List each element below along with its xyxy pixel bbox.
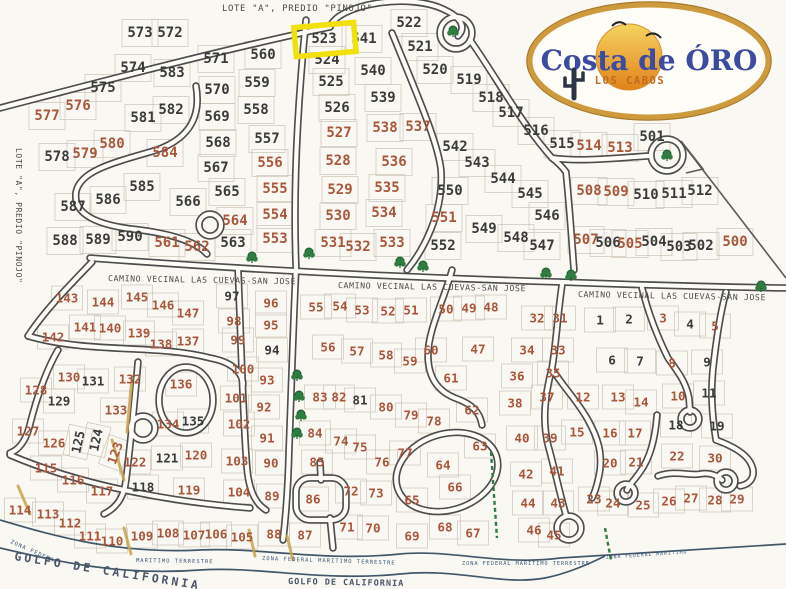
- lot-number-136: 136: [170, 377, 193, 392]
- lot-number-509: 509: [603, 184, 628, 200]
- lot-number-89: 89: [264, 489, 279, 504]
- lot-number-554: 554: [262, 207, 287, 223]
- lot-number-138: 138: [150, 337, 173, 352]
- lot-number-127: 127: [17, 424, 40, 439]
- lot-number-84: 84: [307, 426, 323, 441]
- lot-number-113: 113: [37, 507, 60, 522]
- lot-number-43: 43: [550, 496, 565, 511]
- lot-number-14: 14: [633, 395, 649, 410]
- top-title: LOTE "A", PREDIO "PINOJO": [222, 4, 372, 14]
- lot-number-586: 586: [95, 192, 120, 208]
- lot-number-34: 34: [519, 343, 535, 358]
- lot-number-147: 147: [177, 306, 200, 321]
- lot-number-567: 567: [203, 160, 228, 176]
- lot-number-519: 519: [456, 72, 481, 88]
- lot-number-550: 550: [437, 183, 462, 199]
- lot-number-555: 555: [262, 181, 287, 197]
- left-title: LOTE "A", PREDIO "PINOJO": [14, 148, 23, 283]
- lot-number-518: 518: [478, 90, 503, 106]
- lot-number-87: 87: [297, 528, 312, 543]
- lot-number-90: 90: [263, 456, 278, 471]
- lot-number-86: 86: [305, 492, 320, 507]
- lot-number-42: 42: [518, 467, 533, 482]
- lot-number-543: 543: [464, 155, 489, 171]
- lot-number-536: 536: [381, 154, 406, 170]
- lot-number-146: 146: [152, 298, 175, 313]
- lot-number-56: 56: [320, 340, 335, 355]
- lot-number-76: 76: [374, 455, 389, 470]
- lot-number-17: 17: [627, 426, 642, 441]
- lot-number-568: 568: [205, 135, 230, 151]
- lot-number-515: 515: [549, 136, 574, 152]
- lot-number-547: 547: [529, 238, 554, 254]
- lot-number-36: 36: [509, 369, 524, 384]
- lot-number-139: 139: [128, 326, 151, 341]
- lot-number-53: 53: [354, 303, 369, 318]
- lot-number-105: 105: [231, 530, 254, 545]
- lot-number-24: 24: [605, 496, 621, 511]
- lot-number-115: 115: [35, 461, 58, 476]
- lot-number-527: 527: [326, 125, 351, 141]
- lot-number-69: 69: [404, 529, 419, 544]
- lot-number-67: 67: [465, 526, 480, 541]
- lot-number-49: 49: [461, 301, 476, 316]
- lot-number-13: 13: [610, 390, 625, 405]
- lot-number-65: 65: [404, 493, 419, 508]
- lot-number-45: 45: [546, 528, 561, 543]
- lot-number-16: 16: [602, 426, 617, 441]
- lot-number-106: 106: [205, 527, 228, 542]
- lot-number-15: 15: [569, 425, 584, 440]
- lot-number-59: 59: [402, 354, 417, 369]
- lot-number-91: 91: [259, 431, 274, 446]
- lot-number-520: 520: [422, 62, 447, 78]
- lot-number-52: 52: [380, 304, 395, 319]
- lot-number-531: 531: [320, 235, 345, 251]
- lot-number-2: 2: [625, 312, 633, 327]
- lot-number-37: 37: [539, 390, 554, 405]
- lot-number-510: 510: [633, 187, 658, 203]
- lot-number-532: 532: [345, 239, 370, 255]
- lot-number-27: 27: [683, 491, 698, 506]
- lot-number-588: 588: [52, 233, 77, 249]
- lot-number-40: 40: [514, 431, 529, 446]
- lot-number-590: 590: [117, 229, 142, 245]
- lot-number-563: 563: [220, 235, 245, 251]
- lot-number-6: 6: [608, 353, 616, 368]
- lot-number-48: 48: [483, 300, 498, 315]
- lot-number-75: 75: [352, 440, 367, 455]
- lot-number-577: 577: [34, 108, 59, 124]
- lot-number-57: 57: [349, 344, 364, 359]
- lot-number-38: 38: [507, 396, 522, 411]
- lot-number-109: 109: [131, 529, 154, 544]
- lot-number-41: 41: [549, 464, 564, 479]
- lot-number-553: 553: [262, 231, 287, 247]
- lot-number-523: 523: [311, 31, 336, 47]
- lot-number-21: 21: [628, 455, 643, 470]
- lot-number-33: 33: [550, 343, 565, 358]
- lot-number-516: 516: [523, 123, 548, 139]
- lot-number-573: 573: [127, 25, 152, 41]
- lot-number-535: 535: [374, 180, 399, 196]
- lot-number-513: 513: [607, 140, 632, 156]
- lot-number-508: 508: [576, 183, 601, 199]
- lot-number-575: 575: [90, 80, 115, 96]
- lot-number-121: 121: [156, 451, 179, 466]
- lot-number-585: 585: [129, 179, 154, 195]
- lot-number-78: 78: [426, 414, 441, 429]
- lot-number-97: 97: [224, 289, 239, 304]
- lot-number-92: 92: [256, 400, 271, 415]
- lot-number-22: 22: [669, 449, 684, 464]
- plat-map: CAMINO VECINAL LAS CUEVAS-SAN JOSECAMINO…: [0, 0, 786, 589]
- logo-subtitle: LOS CABOS: [595, 75, 665, 87]
- lot-number-35: 35: [545, 366, 560, 381]
- lot-number-55: 55: [308, 300, 323, 315]
- lot-number-26: 26: [661, 494, 676, 509]
- lot-number-93: 93: [259, 373, 274, 388]
- lot-number-546: 546: [534, 208, 559, 224]
- lot-number-538: 538: [372, 120, 397, 136]
- lot-number-562: 562: [184, 239, 209, 255]
- lot-number-501: 501: [639, 129, 664, 145]
- sea-label: GOLFO DE CALIFORNIA: [288, 577, 404, 589]
- lot-number-581: 581: [130, 110, 155, 126]
- lot-number-131: 131: [82, 374, 105, 389]
- lot-number-512: 512: [687, 183, 712, 199]
- lot-number-98: 98: [226, 314, 241, 329]
- lot-number-60: 60: [423, 343, 438, 358]
- lot-number-120: 120: [185, 448, 208, 463]
- lot-number-584: 584: [152, 145, 177, 161]
- lot-number-72: 72: [343, 484, 358, 499]
- lot-number-130: 130: [58, 370, 81, 385]
- lot-number-9: 9: [703, 355, 711, 370]
- lot-number-511: 511: [661, 186, 686, 202]
- lot-number-533: 533: [379, 235, 404, 251]
- lot-number-25: 25: [635, 498, 650, 513]
- lot-number-572: 572: [157, 25, 182, 41]
- lot-number-54: 54: [332, 299, 348, 314]
- lot-number-560: 560: [250, 47, 275, 63]
- lot-number-94: 94: [264, 343, 280, 358]
- lot-number-565: 565: [214, 184, 239, 200]
- lot-number-145: 145: [126, 290, 149, 305]
- lot-number-587: 587: [60, 199, 85, 215]
- lot-number-32: 32: [529, 311, 544, 326]
- lot-number-505: 505: [617, 236, 642, 252]
- lot-number-102: 102: [228, 417, 251, 432]
- lot-number-551: 551: [431, 210, 456, 226]
- lot-number-8: 8: [668, 356, 676, 371]
- lot-number-525: 525: [318, 74, 343, 90]
- lot-number-552: 552: [430, 238, 455, 254]
- lot-number-88: 88: [266, 527, 281, 542]
- lot-number-71: 71: [339, 520, 354, 535]
- lot-number-1: 1: [596, 313, 604, 328]
- lot-number-100: 100: [232, 362, 255, 377]
- lot-number-99: 99: [230, 333, 245, 348]
- lot-number-70: 70: [365, 521, 380, 536]
- lot-number-66: 66: [447, 480, 462, 495]
- lot-number-5: 5: [711, 319, 719, 334]
- lot-number-4: 4: [686, 317, 694, 332]
- lot-number-116: 116: [62, 473, 85, 488]
- lot-number-571: 571: [203, 51, 228, 67]
- lot-number-110: 110: [101, 534, 124, 549]
- lot-number-111: 111: [79, 529, 102, 544]
- lot-number-500: 500: [722, 234, 747, 250]
- lot-number-62: 62: [464, 403, 479, 418]
- lot-number-58: 58: [378, 348, 393, 363]
- lot-number-117: 117: [91, 484, 114, 499]
- map-svg: CAMINO VECINAL LAS CUEVAS-SAN JOSECAMINO…: [0, 0, 786, 589]
- lot-number-522: 522: [396, 15, 421, 31]
- lot-number-556: 556: [257, 155, 282, 171]
- lot-number-81: 81: [352, 393, 367, 408]
- lot-number-68: 68: [437, 520, 452, 535]
- lot-number-64: 64: [435, 458, 451, 473]
- lot-number-74: 74: [333, 434, 349, 449]
- lot-number-11: 11: [701, 386, 716, 401]
- lot-number-20: 20: [602, 456, 617, 471]
- lot-number-144: 144: [92, 295, 115, 310]
- lot-number-502: 502: [688, 238, 713, 254]
- lot-number-126: 126: [43, 436, 66, 451]
- lot-number-63: 63: [472, 439, 487, 454]
- lot-number-118: 118: [132, 480, 155, 495]
- lot-number-104: 104: [228, 485, 251, 500]
- lot-number-80: 80: [378, 400, 393, 415]
- lot-number-569: 569: [204, 109, 229, 125]
- lot-number-566: 566: [175, 194, 200, 210]
- lot-number-534: 534: [371, 205, 396, 221]
- lot-number-129: 129: [48, 394, 71, 409]
- logo: Costa de ÓRO LOS CABOS: [527, 2, 771, 120]
- lot-number-141: 141: [74, 320, 97, 335]
- lot-number-530: 530: [325, 208, 350, 224]
- lot-number-582: 582: [158, 102, 183, 118]
- lot-number-122: 122: [124, 455, 147, 470]
- lot-number-578: 578: [44, 149, 69, 165]
- lot-number-31: 31: [552, 311, 567, 326]
- lot-number-107: 107: [183, 528, 206, 543]
- lot-number-545: 545: [517, 186, 542, 202]
- lot-number-539: 539: [370, 90, 395, 106]
- lot-number-528: 528: [325, 153, 350, 169]
- lot-number-557: 557: [254, 131, 279, 147]
- lot-number-134: 134: [157, 417, 180, 432]
- lot-number-50: 50: [438, 302, 453, 317]
- lot-number-18: 18: [668, 418, 683, 433]
- lot-number-28: 28: [707, 493, 722, 508]
- lot-number-39: 39: [542, 431, 557, 446]
- lot-number-103: 103: [226, 454, 249, 469]
- lot-number-564: 564: [222, 213, 247, 229]
- lot-number-548: 548: [503, 230, 528, 246]
- lot-number-135: 135: [182, 414, 205, 429]
- lot-number-108: 108: [157, 526, 180, 541]
- lot-number-3: 3: [659, 311, 667, 326]
- lot-number-570: 570: [204, 82, 229, 98]
- lot-number-558: 558: [243, 102, 268, 118]
- lot-number-12: 12: [575, 390, 590, 405]
- lot-number-10: 10: [670, 389, 685, 404]
- lot-number-143: 143: [56, 291, 79, 306]
- lot-number-514: 514: [576, 138, 601, 154]
- lot-number-19: 19: [709, 419, 724, 434]
- lot-number-23: 23: [586, 492, 601, 507]
- lot-number-128: 128: [25, 383, 48, 398]
- lot-number-96: 96: [263, 296, 278, 311]
- lot-number-85: 85: [309, 455, 324, 470]
- lot-number-544: 544: [490, 171, 515, 187]
- lot-number-83: 83: [312, 390, 327, 405]
- lot-number-132: 132: [119, 372, 142, 387]
- lot-number-580: 580: [99, 136, 124, 152]
- lot-number-559: 559: [244, 75, 269, 91]
- lot-number-521: 521: [407, 39, 432, 55]
- lot-number-119: 119: [178, 483, 201, 498]
- lot-number-95: 95: [263, 318, 278, 333]
- lot-number-114: 114: [9, 503, 32, 518]
- lot-number-140: 140: [99, 321, 122, 336]
- lot-number-583: 583: [159, 65, 184, 81]
- lot-number-44: 44: [520, 496, 536, 511]
- lot-number-51: 51: [403, 303, 418, 318]
- lot-number-537: 537: [405, 119, 430, 135]
- lot-number-542: 542: [442, 139, 467, 155]
- lot-number-77: 77: [397, 446, 412, 461]
- lot-number-137: 137: [177, 334, 200, 349]
- lot-number-82: 82: [331, 390, 346, 405]
- lot-number-142: 142: [42, 330, 65, 345]
- lot-number-73: 73: [368, 486, 383, 501]
- lot-number-504: 504: [641, 234, 666, 250]
- lot-number-576: 576: [65, 98, 90, 114]
- lot-number-30: 30: [707, 451, 722, 466]
- lot-number-517: 517: [498, 105, 523, 121]
- lot-number-561: 561: [154, 235, 179, 251]
- lot-number-29: 29: [729, 492, 744, 507]
- lot-number-101: 101: [225, 391, 248, 406]
- lot-number-7: 7: [636, 354, 644, 369]
- lot-number-540: 540: [360, 63, 385, 79]
- lot-number-549: 549: [471, 221, 496, 237]
- lot-number-529: 529: [327, 182, 352, 198]
- lot-number-589: 589: [85, 232, 110, 248]
- lot-number-526: 526: [324, 100, 349, 116]
- lot-number-133: 133: [105, 403, 128, 418]
- lot-number-47: 47: [470, 342, 485, 357]
- lot-number-79: 79: [403, 408, 418, 423]
- lot-number-61: 61: [443, 371, 458, 386]
- lot-number-46: 46: [526, 523, 541, 538]
- federal-zone-label: ZONA FEDERAL MARITIMO TERRESTRE: [462, 561, 590, 567]
- lot-number-579: 579: [72, 146, 97, 162]
- lot-number-574: 574: [120, 60, 145, 76]
